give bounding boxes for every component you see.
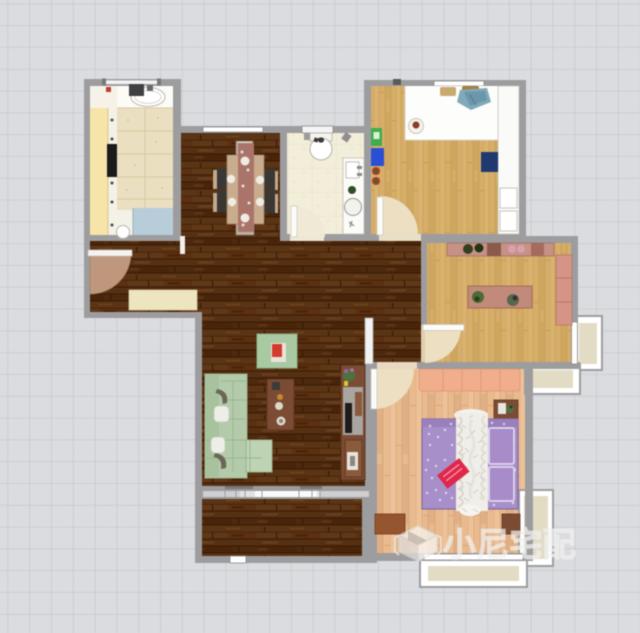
svg-text:小尼宅配: 小尼宅配	[443, 526, 576, 563]
